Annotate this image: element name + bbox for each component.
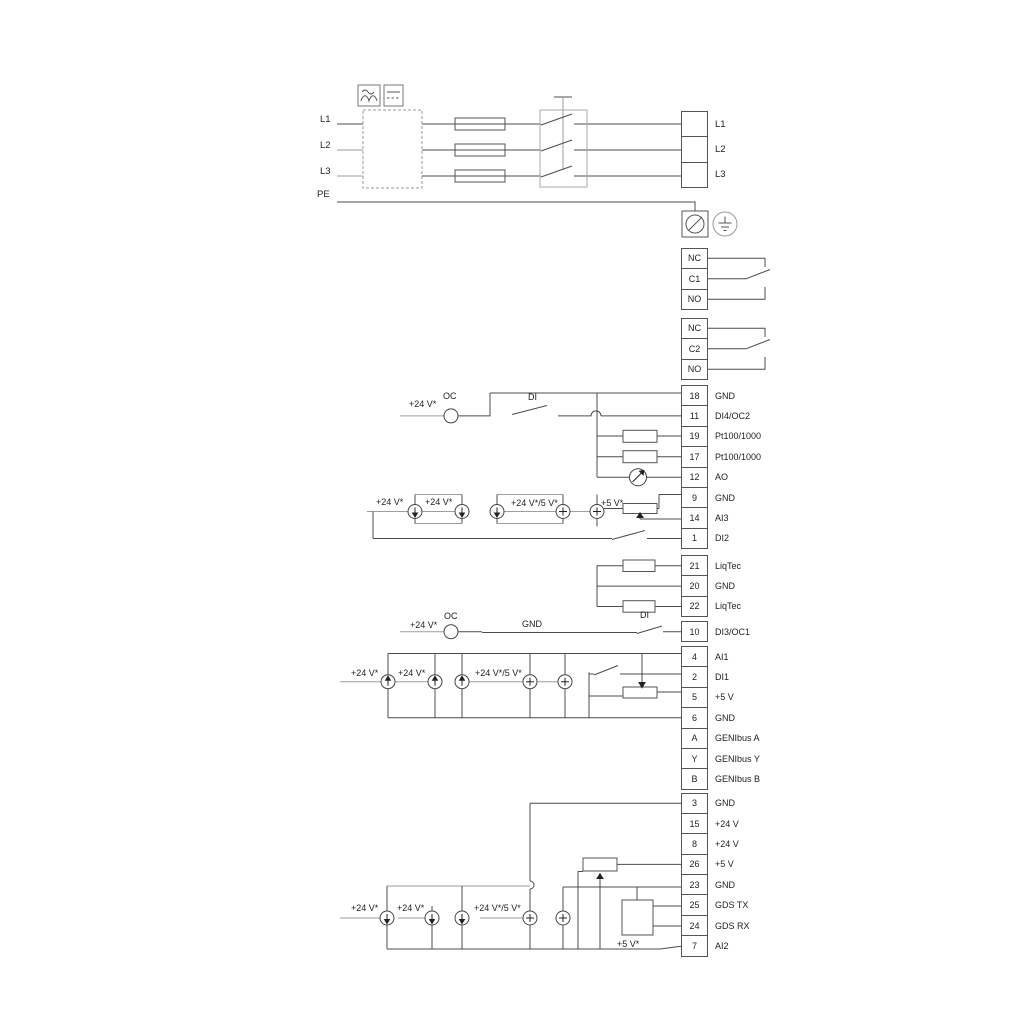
gds-wires [637, 887, 681, 926]
terminal-label: DI3/OC1 [715, 627, 750, 637]
supply-label: +24 V*/5 V* [511, 498, 558, 508]
terminal-label: GENIbus Y [715, 754, 760, 764]
ac-symbol-box [358, 85, 380, 106]
terminal-cell: 21 [681, 555, 708, 576]
terminal-number: 18 [689, 391, 699, 401]
supply-label: +24 V*/5 V* [474, 903, 521, 913]
terminal-cell: 18 [681, 385, 708, 406]
terminal-number: 4 [692, 652, 697, 662]
terminal-label: AI1 [715, 652, 729, 662]
terminal-number: 5 [692, 692, 697, 702]
terminal-row: 12AO [681, 467, 761, 488]
relay2-contact [708, 328, 770, 369]
terminal-row: 8+24 V [681, 833, 750, 854]
terminal-number: 7 [692, 941, 697, 951]
terminal-cell: 1 [681, 528, 708, 549]
mains-label-pe: PE [317, 190, 330, 200]
terminal-number: 22 [689, 601, 699, 611]
terminal-cell: 26 [681, 854, 708, 875]
terminal-row: NC [681, 318, 708, 340]
terminal-cell [681, 136, 708, 162]
terminal-label: GDS TX [715, 900, 748, 910]
terminal-row: 18GND [681, 385, 761, 406]
terminal-row: 20GND [681, 575, 741, 596]
terminal-cell: A [681, 728, 708, 749]
oc1-open-collector-icon [444, 625, 458, 639]
terminal-row: L1 [681, 111, 726, 137]
oc2-open-collector-icon [444, 409, 458, 423]
terminal-number: NC [688, 323, 701, 333]
terminal-number: NO [688, 294, 702, 304]
terminal-cell [681, 111, 708, 137]
terminal-label: Pt100/1000 [715, 431, 761, 441]
pt100-wires [597, 436, 681, 457]
pot26-wires [563, 864, 681, 887]
terminal-label: LiqTec [715, 561, 741, 571]
terminal-row: YGENIbus Y [681, 748, 760, 769]
terminal-number: B [691, 774, 697, 784]
terminal-label: +24 V [715, 819, 739, 829]
terminal-label: GND [715, 391, 735, 401]
terminal-label: GENIbus B [715, 774, 760, 784]
switch-blades [541, 114, 572, 177]
terminal-cell: 25 [681, 894, 708, 915]
setpoint-wiper-arrow [597, 874, 603, 879]
terminal-row: AGENIbus A [681, 728, 760, 749]
terminal-label: L1 [715, 119, 726, 130]
terminal-row: NO [681, 359, 708, 381]
relay2-terminal-block: NC C2 NO [681, 318, 708, 381]
oc-label: OC [443, 391, 457, 401]
terminal-cell: NO [681, 289, 708, 311]
terminal-label: L3 [715, 169, 726, 180]
supply-label: +24 V* [398, 668, 425, 678]
terminal-number: 25 [689, 900, 699, 910]
terminal-row: BGENIbus B [681, 768, 760, 789]
terminal-number: 17 [689, 452, 699, 462]
supply-label: +24 V*/5 V* [475, 668, 522, 678]
terminal-label: AI2 [715, 941, 729, 951]
terminal-number: C2 [689, 344, 701, 354]
terminal-number: 11 [690, 411, 699, 421]
terminal-row: C2 [681, 338, 708, 360]
terminal-label: DI2 [715, 533, 729, 543]
terminal-row: L3 [681, 162, 726, 188]
mains-label-l2: L2 [320, 141, 331, 151]
supply-label: +24 V* [376, 497, 403, 507]
terminal-row: NC [681, 248, 708, 270]
terminal-number: 9 [692, 493, 697, 503]
terminal-cell: 17 [681, 446, 708, 467]
terminal-row: 22LiqTec [681, 596, 741, 617]
mains-label-l1: L1 [320, 115, 331, 125]
terminal-row: 21LiqTec [681, 555, 741, 576]
terminal-cell: 8 [681, 833, 708, 854]
terminal-label: Pt100/1000 [715, 452, 761, 462]
schematic-canvas [0, 0, 1024, 1024]
supply-label: +24 V* [351, 668, 378, 678]
terminal-label: AI3 [715, 513, 729, 523]
supply-label: +24 V* [425, 497, 452, 507]
terminal-cell: 5 [681, 687, 708, 708]
wiring-diagram: L1 L2 L3 PE +24 V* OC DI +24 V* +24 V* +… [0, 0, 1024, 1024]
terminal-label: GENIbus A [715, 733, 760, 743]
terminal-row: L2 [681, 136, 726, 162]
terminal-number: C1 [689, 274, 701, 284]
terminal-number: 14 [689, 513, 699, 523]
terminal-cell: 24 [681, 915, 708, 936]
liqtec-sensor-1 [623, 560, 655, 572]
terminal-label: AO [715, 472, 728, 482]
terminal-number: 24 [689, 921, 699, 931]
supply-label: +24 V* [410, 620, 437, 630]
supply-label: +24 V* [397, 903, 424, 913]
terminal-row: 17Pt100/1000 [681, 446, 761, 467]
di-label: DI [640, 610, 649, 620]
terminal-label: GDS RX [715, 921, 750, 931]
emc-filter-box [363, 110, 422, 188]
liqtec-sensor-2 [623, 601, 655, 613]
terminal-number: Y [691, 754, 697, 764]
ai2-stems-right [563, 872, 600, 950]
ac-wave [361, 96, 377, 101]
terminal-label: GND [715, 880, 735, 890]
terminal-number: 6 [692, 713, 697, 723]
relay1-terminal-block: NC C1 NO [681, 248, 708, 311]
terminal-row: 4AI1 [681, 646, 760, 667]
terminal-row: 25GDS TX [681, 894, 750, 915]
terminal-cell: Y [681, 748, 708, 769]
terminal-row: C1 [681, 268, 708, 290]
terminal-cell: NC [681, 318, 708, 340]
ai1-pot-wires [589, 654, 681, 697]
terminal-cell: 23 [681, 874, 708, 895]
terminal-label: GND [715, 493, 735, 503]
terminal-label: +5 V [715, 692, 734, 702]
terminal-cell: 4 [681, 646, 708, 667]
terminal-cell: 3 [681, 793, 708, 814]
gnd3-wire [530, 803, 681, 949]
terminal-row: NO [681, 289, 708, 311]
terminal-row: 11DI4/OC2 [681, 405, 761, 426]
terminal-number: 15 [689, 819, 699, 829]
terminal-row: 26+5 V [681, 854, 750, 875]
gnd-label: GND [522, 619, 542, 629]
terminal-number: 19 [689, 431, 699, 441]
supply-label: +5 V* [617, 939, 639, 949]
earth-icon [713, 212, 737, 236]
terminal-row: 7AI2 [681, 935, 750, 956]
terminal-number: 3 [692, 798, 697, 808]
terminal-label: L2 [715, 144, 726, 155]
terminal-cell [681, 162, 708, 188]
terminal-cell: 20 [681, 575, 708, 596]
di3-terminal-strip: 10DI3/OC1 [681, 621, 750, 642]
terminal-number: 10 [689, 627, 699, 637]
terminal-cell: C2 [681, 338, 708, 360]
terminal-row: 1DI2 [681, 528, 761, 549]
liqtec-terminal-strip: 21LiqTec 20GND 22LiqTec [681, 555, 741, 617]
terminal-row: 14AI3 [681, 507, 761, 528]
terminal-cell: 12 [681, 467, 708, 488]
terminal-cell: NO [681, 359, 708, 381]
terminal-cell: 22 [681, 596, 708, 617]
io-terminal-strip-2: 4AI1 2DI1 5+5 V 6GND AGENIbus A YGENIbus… [681, 646, 760, 790]
terminal-label: GND [715, 713, 735, 723]
terminal-label: DI1 [715, 672, 729, 682]
terminal-cell: 7 [681, 935, 708, 956]
terminal-number: NC [688, 253, 701, 263]
di4-circuit [458, 393, 681, 416]
terminal-cell: 9 [681, 487, 708, 508]
terminal-number: 23 [689, 880, 699, 890]
terminal-cell: 15 [681, 813, 708, 834]
terminal-cell: NC [681, 248, 708, 270]
terminal-label: +5 V [715, 859, 734, 869]
terminal-cell: 6 [681, 707, 708, 728]
ac-tilde [362, 90, 374, 94]
terminal-number: 21 [689, 561, 699, 571]
terminal-number: A [691, 733, 697, 743]
supply-label: +5 V* [601, 498, 623, 508]
circle-symbols [380, 409, 647, 925]
pt100-resistor-1 [623, 430, 657, 442]
terminal-row: 9GND [681, 487, 761, 508]
terminal-row: 23GND [681, 874, 750, 895]
supply-label: +24 V* [351, 903, 378, 913]
terminal-cell: 10 [681, 621, 708, 642]
terminal-number: 8 [692, 839, 697, 849]
ai1-potentiometer [623, 687, 657, 698]
terminal-number: NO [688, 364, 702, 374]
mains-terminal-block: L1 L2 L3 [681, 111, 726, 188]
terminal-number: 12 [689, 472, 699, 482]
terminal-label: GND [715, 581, 735, 591]
terminal-cell: C1 [681, 268, 708, 290]
setpoint-potentiometer [583, 858, 617, 871]
terminal-cell: 14 [681, 507, 708, 528]
terminal-number: 2 [692, 672, 697, 682]
terminal-label: +24 V [715, 839, 739, 849]
terminal-cell: 11 [681, 405, 708, 426]
terminal-row: 15+24 V [681, 813, 750, 834]
terminal-label: GND [715, 798, 735, 808]
terminal-row: 19Pt100/1000 [681, 426, 761, 447]
terminal-cell: 2 [681, 666, 708, 687]
di3-circuit [458, 626, 681, 634]
terminal-row: 10DI3/OC1 [681, 621, 750, 642]
terminal-row: 2DI1 [681, 666, 760, 687]
io-terminal-strip-3: 3GND 15+24 V 8+24 V 26+5 V 23GND 25GDS T… [681, 793, 750, 957]
terminal-row: 24GDS RX [681, 915, 750, 936]
oc-label: OC [444, 611, 458, 621]
pe-wire [337, 202, 695, 211]
ai1-source-stems [388, 654, 565, 718]
mains-label-l3: L3 [320, 167, 331, 177]
io-terminal-strip-1: 18GND 11DI4/OC2 19Pt100/1000 17Pt100/100… [681, 385, 761, 549]
terminal-label: LiqTec [715, 601, 741, 611]
pt100-resistor-2 [623, 451, 657, 463]
di-label: DI [528, 392, 537, 402]
terminal-row: 3GND [681, 793, 750, 814]
terminal-number: 26 [689, 859, 699, 869]
terminal-number: 1 [692, 533, 697, 543]
terminal-row: 6GND [681, 707, 760, 728]
supply-label: +24 V* [409, 399, 436, 409]
relay1-contact [708, 258, 770, 299]
terminal-label: DI4/OC2 [715, 411, 750, 421]
terminal-number: 20 [689, 581, 699, 591]
dc-symbol-box [384, 85, 403, 106]
gds-sensor-box [622, 900, 653, 935]
terminal-cell: 19 [681, 426, 708, 447]
terminal-cell: B [681, 768, 708, 789]
terminal-row: 5+5 V [681, 687, 760, 708]
